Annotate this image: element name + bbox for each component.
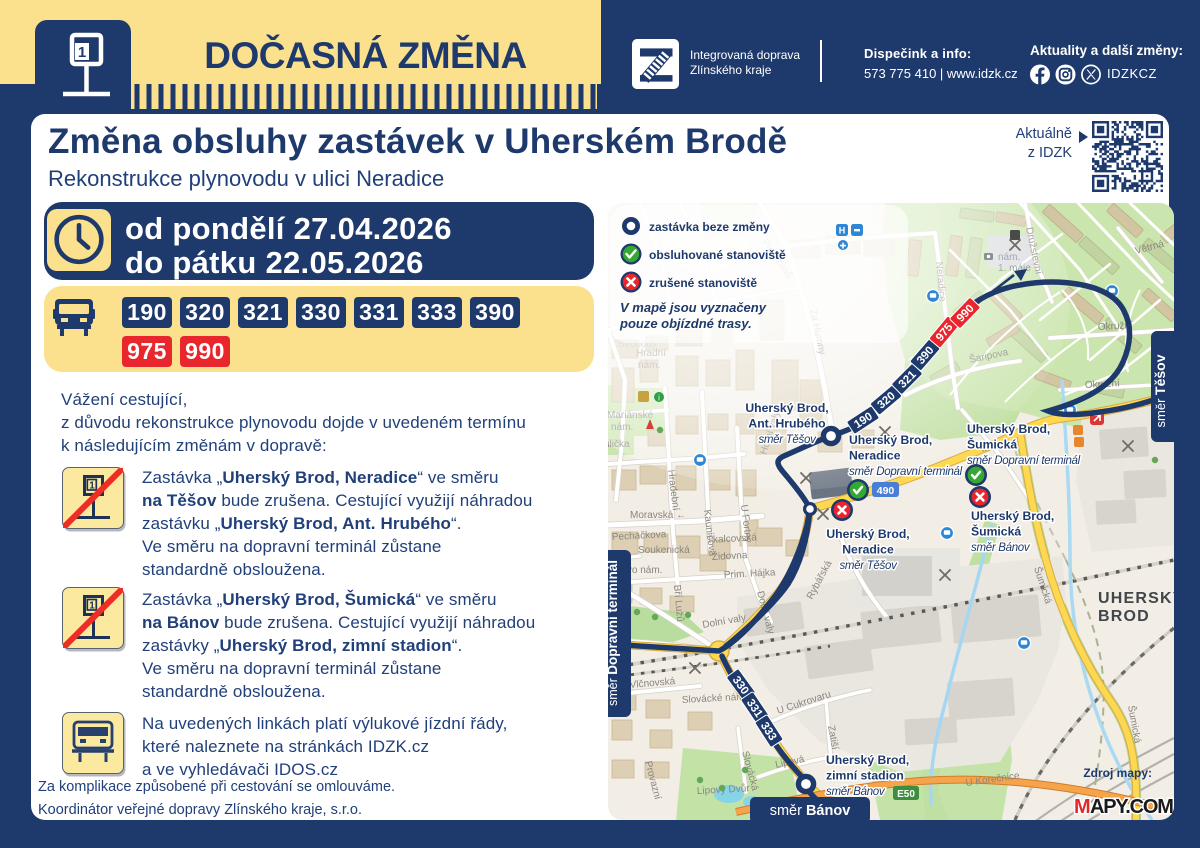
svg-text:V mapě jsou vyznačeny: V mapě jsou vyznačeny (620, 300, 767, 315)
svg-text:směr Bánov: směr Bánov (971, 542, 1031, 554)
svg-text:zastávka beze změny: zastávka beze změny (649, 220, 770, 234)
svg-text:BROD: BROD (1098, 608, 1150, 625)
svg-text:H: H (839, 226, 846, 236)
svg-text:Uherský Brod,: Uherský Brod, (826, 753, 909, 767)
svg-text:M: M (1074, 796, 1091, 818)
svg-text:Neradice: Neradice (849, 449, 901, 463)
svg-text:Neradice: Neradice (842, 543, 894, 557)
svg-text:E50: E50 (897, 789, 915, 800)
svg-text:Uherský Brod,: Uherský Brod, (967, 422, 1050, 436)
svg-text:Ant. Hrubého: Ant. Hrubého (748, 417, 825, 431)
svg-text:UHERSKÝ: UHERSKÝ (1098, 588, 1174, 607)
svg-text:směr Dopravní terminál: směr Dopravní terminál (967, 455, 1081, 467)
svg-text:1: 1 (89, 481, 95, 492)
svg-text:490: 490 (877, 485, 895, 497)
svg-text:směr Bánov: směr Bánov (770, 803, 851, 819)
svg-text:Uherský Brod,: Uherský Brod, (826, 527, 909, 541)
svg-text:Uherský Brod,: Uherský Brod, (971, 509, 1054, 523)
svg-text:směr Dopravní terminál: směr Dopravní terminál (608, 560, 620, 706)
svg-text:směr Bánov: směr Bánov (826, 786, 886, 798)
svg-text:Soukenická: Soukenická (638, 545, 690, 556)
svg-text:obsluhované stanoviště: obsluhované stanoviště (649, 248, 786, 262)
svg-text:1: 1 (78, 44, 86, 61)
svg-text:směr Dopravní terminál: směr Dopravní terminál (849, 466, 963, 478)
svg-text:APY.COM: APY.COM (1090, 796, 1173, 818)
svg-text:1: 1 (89, 601, 95, 612)
svg-text:Zdroj mapy:: Zdroj mapy: (1083, 766, 1152, 780)
svg-text:Šumická: Šumická (967, 437, 1017, 452)
svg-text:Uherský Brod,: Uherský Brod, (849, 433, 932, 447)
svg-text:pouze objízdné trasy.: pouze objízdné trasy. (619, 316, 752, 331)
svg-text:směr Těšov: směr Těšov (758, 434, 817, 446)
svg-text:Moravská ←: Moravská ← (630, 510, 686, 521)
svg-text:směr Těšov: směr Těšov (1152, 354, 1168, 427)
svg-text:i: i (658, 394, 660, 403)
svg-text:zimní stadion: zimní stadion (826, 769, 904, 783)
svg-text:směr Těšov: směr Těšov (839, 560, 898, 572)
svg-text:✚: ✚ (840, 242, 847, 251)
svg-text:Uherský Brod,: Uherský Brod, (745, 401, 828, 415)
svg-text:zrušené stanoviště: zrušené stanoviště (649, 276, 757, 290)
svg-text:Šumická: Šumická (971, 524, 1021, 539)
